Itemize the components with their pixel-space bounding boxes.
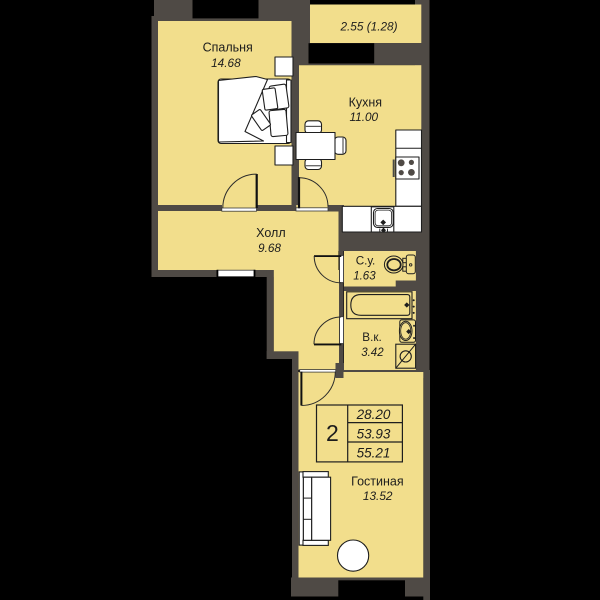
svg-text:2: 2	[326, 420, 339, 446]
svg-text:Холл: Холл	[256, 226, 285, 240]
svg-text:28.20: 28.20	[356, 407, 391, 422]
svg-text:Кухня: Кухня	[349, 96, 382, 110]
svg-text:В.к.: В.к.	[362, 331, 381, 344]
svg-text:1.63: 1.63	[353, 270, 376, 282]
svg-text:13.52: 13.52	[363, 489, 393, 503]
svg-text:14.68: 14.68	[211, 56, 241, 70]
svg-text:53.93: 53.93	[357, 427, 391, 442]
svg-text:С.у.: С.у.	[356, 254, 376, 267]
svg-text:Спальня: Спальня	[203, 40, 253, 54]
svg-text:3.42: 3.42	[361, 347, 384, 359]
svg-text:11.00: 11.00	[349, 110, 378, 124]
svg-text:Гостиная: Гостиная	[351, 474, 403, 488]
svg-text:2.55 (1.28): 2.55 (1.28)	[339, 20, 397, 34]
svg-text:55.21: 55.21	[357, 445, 391, 460]
svg-text:9.68: 9.68	[258, 241, 281, 255]
